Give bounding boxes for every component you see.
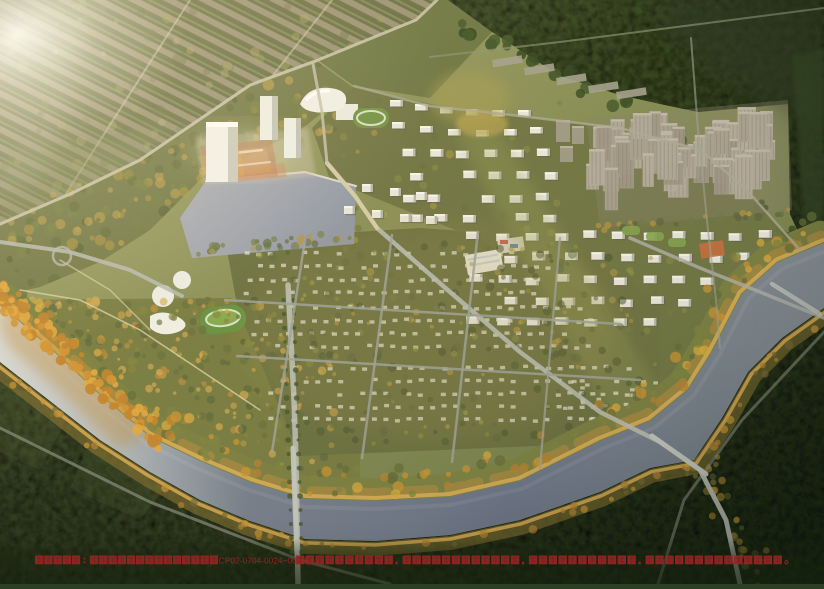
svg-text:CP02-0704-0024~0078: CP02-0704-0024~0078 xyxy=(219,555,307,565)
